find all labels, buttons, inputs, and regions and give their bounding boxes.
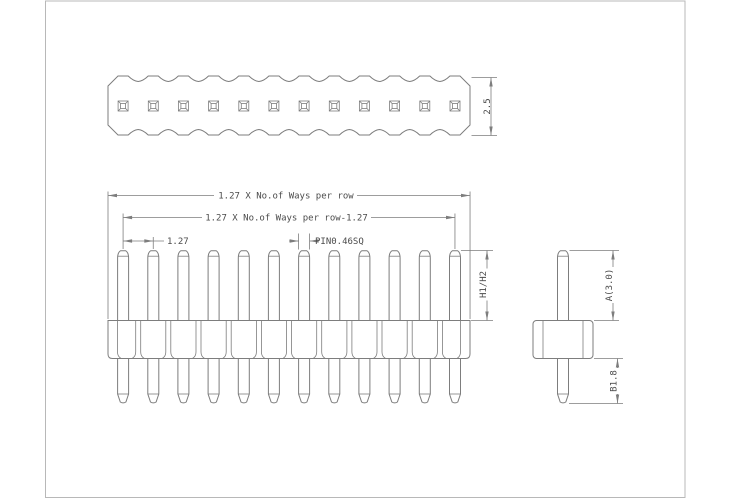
pin-lower <box>389 359 400 403</box>
body-segment-line <box>261 321 265 359</box>
body-segment-line <box>231 321 235 359</box>
body-segment-line <box>118 321 122 359</box>
pin-cross-section-inner <box>271 104 276 109</box>
pin-lower <box>118 359 129 403</box>
dimension-arrowhead <box>616 359 619 368</box>
body-segment-line <box>162 321 166 359</box>
pin-cross-section-inner <box>392 104 397 109</box>
pin-upper <box>389 251 400 321</box>
technical-drawing: 2.5 1.27 X No.of Ways per row 1.27 X No.… <box>0 0 730 501</box>
dimension-arrowhead <box>489 127 492 136</box>
pin-cross-section-inner <box>362 104 367 109</box>
dimension-arrowhead <box>461 194 470 197</box>
pin-lower <box>450 359 461 403</box>
body-segment-line <box>434 321 438 359</box>
dim-label-mating-height: H1/H2 <box>479 271 489 298</box>
pin-upper <box>299 251 310 321</box>
pin-lower <box>148 359 159 403</box>
pin-upper <box>359 251 370 321</box>
side-view: A(3.0) B1.8 <box>533 251 623 404</box>
dimension-arrowhead <box>489 78 492 87</box>
dimension-arrowhead <box>611 251 614 260</box>
body-segment-line <box>382 321 386 359</box>
dimension-arrowhead <box>123 216 132 219</box>
pin-lower <box>299 359 310 403</box>
dim-label-body-width: 2.5 <box>483 98 493 114</box>
body-segment-line <box>292 321 296 359</box>
drawing-canvas: 2.5 1.27 X No.of Ways per row 1.27 X No.… <box>0 0 730 501</box>
pin-lower <box>329 359 340 403</box>
dimension-arrowhead <box>123 239 132 242</box>
pin-lower <box>208 359 219 403</box>
pin-upper <box>419 251 430 321</box>
body-segment-line <box>201 321 205 359</box>
pin-lower <box>238 359 249 403</box>
pin-cross-section-inner <box>422 104 427 109</box>
body-segment-line <box>141 321 145 359</box>
pin-lower <box>558 359 569 403</box>
pin-cross-section-inner <box>151 104 156 109</box>
drawing-frame-border <box>46 1 686 498</box>
pin-lower <box>178 359 189 403</box>
pin-lower <box>268 359 279 403</box>
body-segment-line <box>343 321 347 359</box>
side-body-outline <box>533 321 593 359</box>
pin-upper <box>148 251 159 321</box>
pin-cross-section-inner <box>211 104 216 109</box>
pin-cross-section-inner <box>121 104 126 109</box>
pin-upper <box>208 251 219 321</box>
body-segment-line <box>322 321 326 359</box>
dim-label-span-length: 1.27 X No.of Ways per row-1.27 <box>205 214 368 224</box>
pin-upper <box>118 251 129 321</box>
front-body-outline <box>108 321 470 359</box>
pin-upper <box>558 251 569 321</box>
dimension-arrowhead <box>290 239 299 242</box>
dimension-arrowhead <box>485 251 488 260</box>
front-view: 1.27 X No.of Ways per row 1.27 X No.of W… <box>108 192 493 403</box>
top-view: 2.5 <box>108 76 497 136</box>
pin-upper <box>450 251 461 321</box>
body-segment-line <box>313 321 317 359</box>
dim-label-pin-size: PIN0.46SQ <box>315 237 364 247</box>
pin-lower <box>419 359 430 403</box>
dim-label-pin-above: A(3.0) <box>605 269 615 302</box>
dim-label-pin-below: B1.8 <box>610 370 620 392</box>
body-segment-line <box>457 321 461 359</box>
pin-upper <box>238 251 249 321</box>
dimension-arrowhead <box>485 312 488 321</box>
body-segment-line <box>253 321 257 359</box>
body-segment-line <box>374 321 378 359</box>
body-segment-line <box>404 321 408 359</box>
dimension-arrowhead <box>616 395 619 404</box>
pin-upper <box>329 251 340 321</box>
pin-cross-section-inner <box>302 104 307 109</box>
top-view-body-outline <box>108 76 470 135</box>
body-segment-line <box>132 321 136 359</box>
body-segment-line <box>283 321 287 359</box>
pin-cross-section-inner <box>241 104 246 109</box>
dim-label-pitch: 1.27 <box>167 237 189 247</box>
body-segment-line <box>223 321 227 359</box>
body-segment-line <box>412 321 416 359</box>
pin-cross-section-inner <box>332 104 337 109</box>
pin-upper <box>178 251 189 321</box>
pin-cross-section-inner <box>181 104 186 109</box>
body-segment-line <box>193 321 197 359</box>
body-segment-line <box>442 321 446 359</box>
top-view-geometry <box>108 76 497 136</box>
dim-label-total-length: 1.27 X No.of Ways per row <box>218 192 354 202</box>
dimension-arrowhead <box>446 216 455 219</box>
pin-lower <box>359 359 370 403</box>
body-segment-line <box>352 321 356 359</box>
body-segment-line <box>171 321 175 359</box>
pin-cross-section-inner <box>453 104 458 109</box>
dimension-arrowhead <box>611 312 614 321</box>
pin-upper <box>268 251 279 321</box>
dimension-arrowhead <box>108 194 117 197</box>
dimension-arrowhead <box>144 239 153 242</box>
